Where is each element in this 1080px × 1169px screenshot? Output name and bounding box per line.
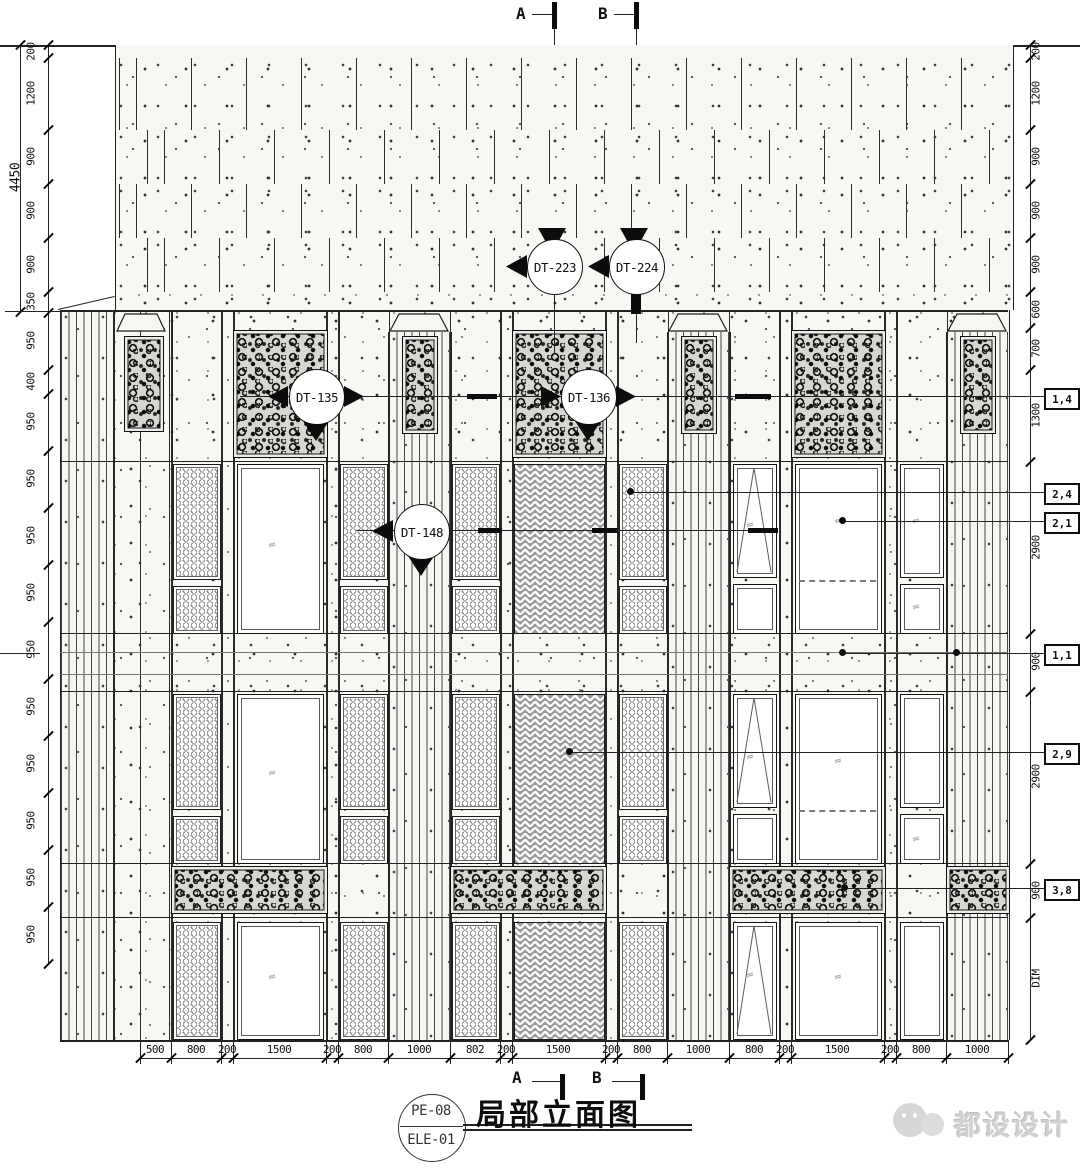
material-tag-3-8: 3,8 (1044, 879, 1080, 901)
leader-thick-segment (592, 528, 618, 533)
dim-label: 1200 (25, 67, 38, 121)
extension-line (946, 1040, 947, 1064)
grille-panel (173, 586, 221, 634)
facade-bottom-line (60, 1040, 1008, 1042)
window (900, 694, 944, 808)
dim-label: 900 (1030, 184, 1043, 238)
window-small (900, 814, 944, 864)
elevation-drawing-sheet: A B (0, 0, 1080, 1169)
tag-leader (845, 888, 1044, 889)
grille-panel (619, 586, 667, 634)
corner-chamfer-line (58, 296, 115, 310)
grille-panel (340, 694, 388, 810)
pilaster-cap-icon (112, 312, 170, 332)
dim-label: 1300 (1030, 389, 1043, 443)
dimension-line (140, 1058, 1008, 1059)
sheet-number: PE-08 (409, 1104, 453, 1117)
dim-label: 950 (25, 452, 38, 506)
pilaster-fluted (946, 332, 1010, 1040)
dim-label: 950 (25, 395, 38, 449)
stone-cap-course (116, 45, 1013, 59)
drawing-number: ELE-01 (409, 1133, 453, 1146)
carved-band-strip (450, 866, 607, 914)
tag-leader (843, 521, 1044, 522)
extension-line (450, 1040, 451, 1064)
dim-label: 950 (25, 509, 38, 563)
section-marker-b-bottom: B (592, 1068, 602, 1087)
grille-panel (340, 464, 388, 580)
callout-leader (554, 293, 555, 353)
stone-course-900 (116, 184, 1013, 239)
carved-panel-narrow (960, 336, 996, 434)
dim-label: 1000 (397, 1043, 441, 1056)
pilaster-cap-icon (384, 312, 454, 332)
drawing-title: 局部立面图 (476, 1090, 706, 1134)
leader-thick-segment (735, 394, 771, 399)
wave-texture-panel (514, 694, 605, 864)
band-line (60, 461, 1008, 462)
joint-line (60, 674, 1008, 675)
detail-callout-dt223: DT-223 (527, 239, 583, 295)
grille-panel (173, 464, 221, 580)
stone-course-1200 (116, 58, 1013, 131)
leader-dot-icon (953, 649, 960, 656)
dim-label: 2900 (1030, 750, 1043, 804)
title-bubble-divider (400, 1126, 463, 1127)
extension-line (1008, 1040, 1009, 1064)
tag-leader (570, 752, 1044, 753)
window (237, 694, 324, 864)
carved-band-strip (729, 866, 886, 914)
window (900, 922, 944, 1040)
leader-thick-segment (478, 528, 502, 533)
detail-callout-dt148: DT-148 (394, 504, 450, 560)
dim-label: 900 (1030, 635, 1043, 689)
leader-dot-icon (566, 748, 573, 755)
section-cut-bar-icon (634, 2, 639, 29)
watermark-text: 都设设计 (954, 1104, 1070, 1143)
detail-callout-dt136: DT-136 (561, 369, 617, 425)
pilaster-fluted (388, 332, 452, 1040)
leader-thick-segment (467, 394, 497, 399)
grille-panel (452, 464, 500, 580)
band-line (60, 691, 1008, 692)
dim-label: 700 (1030, 322, 1043, 376)
dim-label: 200 (484, 1043, 528, 1056)
section-marker-a-top: A (516, 4, 526, 23)
dim-label: 900 (1030, 864, 1043, 918)
dim-label: 800 (899, 1043, 943, 1056)
leader-thick-segment (748, 528, 778, 533)
window (795, 464, 882, 634)
dim-label: 800 (620, 1043, 664, 1056)
hidden-line-dashed (799, 580, 876, 582)
casement-sash-icon (736, 697, 772, 803)
wave-texture-panel (514, 464, 605, 634)
grille-panel (452, 586, 500, 634)
dim-label: 900 (25, 130, 38, 184)
dim-label: 500 (133, 1043, 177, 1056)
section-cut-line (614, 14, 636, 15)
section-cut-bar-icon (552, 2, 557, 29)
stone-transition-strip (116, 292, 1013, 310)
tag-leader (631, 492, 1044, 493)
dim-label: 200 (763, 1043, 807, 1056)
dim-label: 950 (25, 908, 38, 962)
dim-label: 950 (25, 851, 38, 905)
dim-label-overall: 4450 (10, 138, 23, 218)
carved-panel-narrow (681, 336, 717, 434)
tag-leader (843, 653, 1044, 654)
pilaster-fluted (667, 332, 731, 1040)
dim-label: 1200 (1030, 67, 1043, 121)
grille-panel (173, 816, 221, 864)
dim-label: 900 (25, 184, 38, 238)
wave-texture-panel (514, 922, 605, 1040)
stone-course-900 (116, 130, 1013, 185)
leader-dot-icon (627, 488, 634, 495)
dim-label: 1000 (955, 1043, 999, 1056)
pilaster-fluted (60, 310, 114, 1040)
window-small (733, 814, 777, 864)
dim-label: 900 (1030, 130, 1043, 184)
dim-label: 950 (25, 794, 38, 848)
grille-panel (173, 922, 221, 1040)
dim-label: 1500 (257, 1043, 301, 1056)
extension-line (667, 1040, 668, 1064)
material-tag-1-4: 1,4 (1044, 388, 1080, 410)
grille-panel (340, 586, 388, 634)
dim-label: 800 (341, 1043, 385, 1056)
band-line (60, 917, 1008, 918)
section-marker-a-bottom: A (512, 1068, 522, 1087)
extension-line (388, 1040, 389, 1064)
dim-label: 950 (25, 566, 38, 620)
carved-band-strip (171, 866, 328, 914)
dim-label: 1500 (815, 1043, 859, 1056)
dim-label: 1000 (676, 1043, 720, 1056)
section-cut-line (532, 14, 554, 15)
leader-dot-icon (841, 884, 848, 891)
material-tag-2-1: 2,1 (1044, 512, 1080, 534)
grille-panel (619, 816, 667, 864)
grille-panel (340, 816, 388, 864)
dim-label: 950 (25, 680, 38, 734)
material-tag-2-4: 2,4 (1044, 483, 1080, 505)
window (237, 922, 324, 1040)
grille-panel (340, 922, 388, 1040)
grille-panel (173, 694, 221, 810)
carved-panel-large (791, 330, 886, 458)
window (237, 464, 324, 634)
hidden-line-dashed (799, 810, 876, 812)
section-cut-line (612, 1081, 642, 1082)
dim-label: 1500 (536, 1043, 580, 1056)
wechat-logo-bubble-icon (921, 1113, 944, 1136)
window-small (733, 584, 777, 634)
leader-dot-icon (839, 649, 846, 656)
detail-callout-dt135: DT-135 (289, 369, 345, 425)
extension-line (729, 1040, 730, 1064)
dim-label: DIM (1030, 952, 1043, 1006)
grille-panel (619, 464, 667, 580)
grille-panel (452, 816, 500, 864)
section-cut-line (532, 1081, 562, 1082)
material-tag-1-1: 1,1 (1044, 644, 1080, 666)
window-small (900, 584, 944, 634)
pilaster-cap-icon (942, 312, 1012, 332)
band-line (60, 310, 1008, 312)
pilaster-cap-icon (663, 312, 733, 332)
casement-sash-icon (736, 467, 772, 573)
dim-label: 200 (205, 1043, 249, 1056)
dim-label: 950 (25, 737, 38, 791)
grille-panel (452, 922, 500, 1040)
carved-panel-narrow (402, 336, 438, 434)
window (795, 694, 882, 864)
carved-panel-narrow (124, 336, 164, 432)
dim-label: 950 (25, 623, 38, 677)
leader-dot-icon (839, 517, 846, 524)
detail-callout-dt224: DT-224 (609, 239, 665, 295)
material-tag-2-9: 2,9 (1044, 743, 1080, 765)
dim-label: 2900 (1030, 521, 1043, 575)
grille-panel (452, 694, 500, 810)
carved-band-strip (946, 866, 1010, 914)
section-marker-b-top: B (598, 4, 608, 23)
grille-panel (619, 922, 667, 1040)
